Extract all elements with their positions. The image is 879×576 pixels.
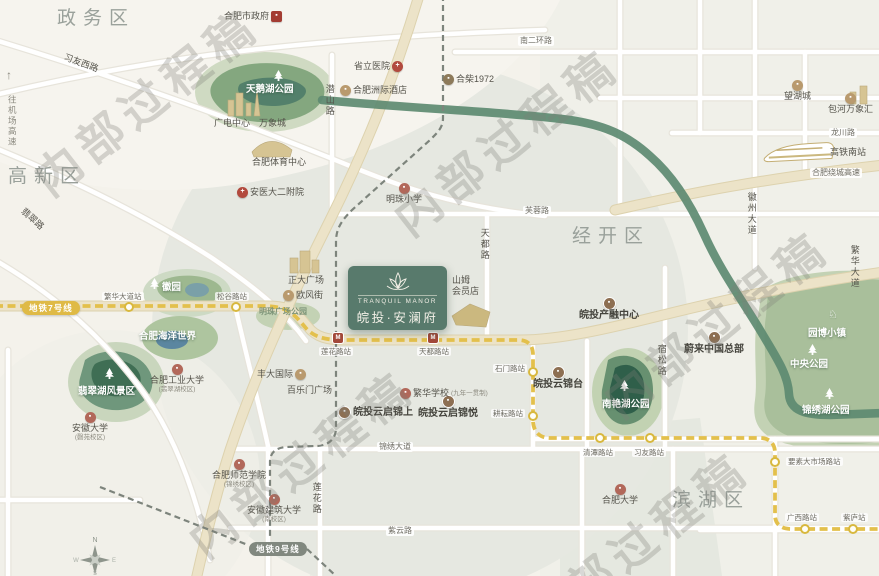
road-airport-expwy: 往机场高速 bbox=[7, 95, 17, 148]
poi-intercontinental-hotel-label: 合肥洲际酒店 bbox=[353, 85, 407, 96]
road-tiandulu-label: 天都路 bbox=[480, 228, 490, 261]
poi-hechai-1972-label: 合柴1972 bbox=[456, 74, 494, 85]
station-xiyoulu: 习友路站 bbox=[632, 448, 666, 457]
road-qianshanlu-label: 潜山路 bbox=[325, 84, 335, 117]
poi-sams-club: 山姆会员店 bbox=[452, 275, 479, 297]
poi-hefei-normal: ▪合肥师范学院(锦绣校区) bbox=[212, 459, 266, 489]
poi-wanxiangcheng-label: 万象城 bbox=[259, 118, 286, 128]
metro-station-dot bbox=[848, 524, 858, 534]
park-jinxiuhu: 锦绣湖公园 bbox=[802, 405, 850, 416]
metro-station-dot bbox=[770, 457, 780, 467]
poi-wantou-yunqi-jinyue-label: 皖投云启锦悦 bbox=[418, 408, 478, 420]
poi-hefei-normal-sublabel: (锦绣校区) bbox=[224, 481, 254, 489]
uni-icon: ▪ bbox=[234, 459, 245, 470]
hotel-icon: ▪ bbox=[340, 85, 351, 96]
road-jinxiu-dadao-label: 锦绣大道 bbox=[379, 442, 411, 451]
station-fanhuadadao: 繁华大道站 bbox=[102, 292, 144, 301]
poi-shengli-hospital: 省立医院+ bbox=[354, 61, 403, 72]
poi-gaotie-nanzhan-label: 高铁南站 bbox=[830, 147, 866, 157]
mall-icon: ▪ bbox=[845, 93, 856, 104]
park-feicuihu: 翡翠湖风景区 bbox=[78, 386, 135, 397]
district-binhu-label: 滨湖区 bbox=[672, 490, 750, 511]
mall-icon: ▪ bbox=[792, 80, 803, 91]
station-guangxilu-label: 广西路站 bbox=[787, 513, 817, 522]
park-feicuihu-label: 翡翠湖风景区 bbox=[78, 386, 135, 397]
brand-icon: ▪ bbox=[603, 297, 616, 310]
location-map: N E S W TRANQUIL MANOR 皖投·安澜府 地铁7号线 地铁9号… bbox=[0, 0, 879, 576]
district-jingkai: 经开区 bbox=[572, 226, 650, 249]
station-xiyoulu-label: 习友路站 bbox=[634, 448, 664, 457]
road-susonglu-label: 宿松路 bbox=[657, 344, 667, 377]
district-binhu: 滨湖区 bbox=[672, 490, 750, 513]
metro-9-badge: 地铁9号线 bbox=[249, 542, 307, 556]
poi-wanghucheng: ▪望湖城 bbox=[784, 80, 811, 102]
poi-anyida-er-hospital-label: 安医大二附院 bbox=[250, 187, 304, 198]
road-lianhualu-label: 莲花路 bbox=[312, 482, 322, 515]
poi-fanhua-school-label: 繁华学校 bbox=[413, 388, 449, 399]
metro-station-badge: M bbox=[332, 332, 344, 344]
poi-baohe-mixc-label: 包河万象汇 bbox=[828, 104, 873, 115]
park-central-park-label: 中央公园 bbox=[790, 359, 828, 370]
station-zilu: 紫庐站 bbox=[841, 513, 868, 522]
station-shimenlu: 石门路站 bbox=[493, 364, 527, 373]
park-huiyuan: 徽园 bbox=[162, 282, 181, 293]
school-icon: ▪ bbox=[400, 388, 411, 399]
mall-icon: ▪ bbox=[295, 369, 306, 380]
poi-gaotie-nanzhan: 高铁南站 bbox=[830, 147, 866, 158]
poi-hefei-normal-label: 合肥师范学院 bbox=[212, 470, 266, 481]
poi-anhui-jianzhu-label: 安徽建筑大学 bbox=[247, 505, 301, 516]
lotus-logo-icon bbox=[384, 271, 412, 293]
poi-hfut: ▪合肥工业大学(翡翠湖校区) bbox=[150, 364, 204, 394]
metro-station-dot bbox=[595, 433, 605, 443]
station-lianhualu: 莲花路站 bbox=[319, 347, 353, 356]
poi-hefei-government-label: 合肥市政府 bbox=[224, 11, 269, 22]
station-shimenlu-label: 石门路站 bbox=[495, 364, 525, 373]
district-zhengwu: 政务区 bbox=[57, 8, 135, 31]
poi-mingzhu-primary-label: 明珠小学 bbox=[386, 194, 422, 205]
cross-icon: + bbox=[237, 187, 248, 198]
station-zilu-label: 紫庐站 bbox=[843, 513, 866, 522]
station-gengyunlu-label: 耕耘路站 bbox=[493, 409, 523, 418]
poi-fengda-intl: 丰大国际▪ bbox=[257, 369, 306, 380]
district-jingkai-label: 经开区 bbox=[572, 226, 650, 247]
poi-wanghucheng-label: 望湖城 bbox=[784, 91, 811, 102]
metro-station-dot bbox=[645, 433, 655, 443]
park-tianehu-label: 天鹅湖公园 bbox=[246, 84, 294, 95]
station-qingtanlu-label: 清潭路站 bbox=[583, 448, 613, 457]
road-nanerhuanlu: 南二环路 bbox=[518, 36, 554, 46]
svg-text:E: E bbox=[112, 558, 116, 564]
poi-zhengda-plaza-label: 正大广场 bbox=[288, 275, 324, 285]
road-fanhua-dadao-label: 繁华大道 bbox=[850, 245, 860, 289]
poi-anhui-jianzhu-sublabel: (南校区) bbox=[262, 516, 286, 524]
poi-fengda-intl-label: 丰大国际 bbox=[257, 369, 293, 380]
district-gaoxin-label: 高新区 bbox=[8, 166, 86, 187]
road-huizhou-dadao: 徽州大道 bbox=[746, 192, 757, 236]
park-huiyuan-label: 徽园 bbox=[162, 282, 181, 293]
poi-bailemen-plaza: 百乐门广场 bbox=[287, 385, 332, 396]
brand-icon: ▪ bbox=[338, 406, 351, 419]
road-longchuanlu: 龙川路 bbox=[829, 128, 857, 138]
district-gaoxin: 高新区 bbox=[8, 166, 86, 189]
road-nanerhuanlu-label: 南二环路 bbox=[520, 36, 552, 45]
road-airport-expwy-label: 往机场高速 bbox=[7, 95, 17, 148]
station-qingtanlu: 清潭路站 bbox=[581, 448, 615, 457]
poi-hefei-government: 合肥市政府▪ bbox=[224, 11, 282, 22]
poi-fanhua-school: ▪繁华学校(九年一贯制) bbox=[400, 388, 488, 399]
park-nanyanhu-label: 南艳湖公园 bbox=[602, 399, 650, 410]
metro-station-dot bbox=[800, 524, 810, 534]
poi-hfut-sublabel: (翡翠湖校区) bbox=[159, 386, 196, 394]
svg-text:N: N bbox=[92, 537, 97, 544]
poi-anhui-univ-sublabel: (磬苑校区) bbox=[75, 434, 105, 442]
station-songgulu: 松谷路站 bbox=[215, 292, 249, 301]
cross-icon: + bbox=[392, 61, 403, 72]
poi-hefei-univ: ▪合肥大学 bbox=[602, 484, 638, 506]
arrow-up-icon: ↑ bbox=[6, 68, 12, 82]
park-jinxiuhu-label: 锦绣湖公园 bbox=[802, 405, 850, 416]
road-huizhou-dadao-label: 徽州大道 bbox=[747, 192, 757, 236]
brand-icon: ▪ bbox=[708, 331, 721, 344]
poi-wantou-yunjintai: ▪皖投云锦台 bbox=[533, 366, 583, 391]
metro-station-dot bbox=[528, 411, 538, 421]
project-name-cn: 皖投·安澜府 bbox=[357, 307, 439, 326]
park-yuanbo-town: 园博小镇 bbox=[808, 328, 846, 339]
school-icon: ▪ bbox=[399, 183, 410, 194]
svg-text:S: S bbox=[93, 571, 97, 576]
poi-wantou-yunqi-jinshang: ▪皖投云启锦上 bbox=[338, 406, 413, 419]
park-yuanbo-town-label: 园博小镇 bbox=[808, 328, 846, 339]
park-nanyanhu: 南艳湖公园 bbox=[602, 399, 650, 410]
poi-hechai-1972: ▪合柴1972 bbox=[443, 74, 494, 85]
poi-wantou-yunjintai-label: 皖投云锦台 bbox=[533, 379, 583, 391]
district-zhengwu-label: 政务区 bbox=[57, 8, 135, 29]
poi-sports-center-label: 合肥体育中心 bbox=[252, 157, 306, 167]
road-furonglu-label: 芙蓉路 bbox=[525, 206, 549, 215]
metro-station-dot bbox=[231, 302, 241, 312]
poi-sams-club-label: 山姆 bbox=[452, 275, 470, 285]
poi-wantou-chanrong-label: 皖投产融中心 bbox=[579, 310, 639, 322]
poi-anhui-jianzhu: ▪安徽建筑大学(南校区) bbox=[247, 494, 301, 524]
road-ziyunlu-label: 紫云路 bbox=[388, 526, 412, 535]
station-yaosudashichanglu-label: 要素大市场路站 bbox=[788, 457, 841, 466]
park-mingzhu-guangchang-label: 明珠广场公园 bbox=[259, 307, 307, 316]
station-tiandulu-label: 天都路站 bbox=[419, 347, 449, 356]
poi-bailemen-plaza-label: 百乐门广场 bbox=[287, 385, 332, 395]
svg-text:W: W bbox=[73, 558, 79, 564]
road-lianhualu: 莲花路 bbox=[311, 482, 322, 515]
road-longchuanlu-label: 龙川路 bbox=[831, 128, 855, 137]
factory-icon: ▪ bbox=[443, 74, 454, 85]
road-ziyunlu: 紫云路 bbox=[386, 526, 414, 536]
road-tiandulu: 天都路 bbox=[479, 228, 490, 261]
poi-mingzhu-primary: ▪明珠小学 bbox=[386, 183, 422, 205]
metro-station-badge: M bbox=[427, 332, 439, 344]
poi-fanhua-school-sublabel: (九年一贯制) bbox=[451, 390, 488, 398]
station-songgulu-label: 松谷路站 bbox=[217, 292, 247, 301]
poi-baohe-mixc: ▪包河万象汇 bbox=[828, 93, 873, 115]
road-raocheng-gaosu: 合肥绕城高速 bbox=[810, 168, 862, 178]
poi-wantou-yunqi-jinshang-label: 皖投云启锦上 bbox=[353, 407, 413, 419]
uni-icon: ▪ bbox=[172, 364, 183, 375]
poi-intercontinental-hotel: ▪合肥洲际酒店 bbox=[340, 85, 407, 96]
poi-sports-center: 合肥体育中心 bbox=[252, 157, 306, 168]
road-susonglu: 宿松路 bbox=[656, 344, 667, 377]
station-yaosudashichanglu: 要素大市场路站 bbox=[786, 457, 843, 466]
poi-anyida-er-hospital: +安医大二附院 bbox=[237, 187, 304, 198]
project-name-en: TRANQUIL MANOR bbox=[358, 295, 437, 305]
poi-oufengjie: ▪欧风街 bbox=[283, 290, 323, 301]
station-lianhualu-label: 莲花路站 bbox=[321, 347, 351, 356]
station-guangxilu: 广西路站 bbox=[785, 513, 819, 522]
park-mingzhu-guangchang: 明珠广场公园 bbox=[259, 307, 307, 317]
horse-icon: ♘ bbox=[828, 308, 838, 321]
mall-icon: ▪ bbox=[283, 290, 294, 301]
metro-7-badge: 地铁7号线 bbox=[22, 301, 80, 315]
uni-icon: ▪ bbox=[615, 484, 626, 495]
brand-icon: ▪ bbox=[552, 366, 565, 379]
road-furonglu: 芙蓉路 bbox=[523, 206, 551, 216]
poi-shengli-hospital-label: 省立医院 bbox=[354, 61, 390, 72]
uni-icon: ▪ bbox=[85, 412, 96, 423]
poi-wantou-chanrong: ▪皖投产融中心 bbox=[579, 297, 639, 322]
poi-anhui-univ-label: 安徽大学 bbox=[72, 423, 108, 434]
poi-anhui-univ: ▪安徽大学(磬苑校区) bbox=[72, 412, 108, 442]
poi-sams-club-label-2: 会员店 bbox=[452, 286, 479, 297]
road-qianshanlu: 潜山路 bbox=[324, 84, 335, 117]
park-tianehu: 天鹅湖公园 bbox=[246, 84, 294, 95]
poi-nio-hq-label: 蔚来中国总部 bbox=[684, 344, 744, 356]
metro-station-dot bbox=[124, 302, 134, 312]
project-card: TRANQUIL MANOR 皖投·安澜府 bbox=[348, 266, 447, 330]
poi-wanxiangcheng: 万象城 bbox=[259, 118, 286, 129]
road-fanhua-dadao: 繁华大道 bbox=[849, 245, 860, 289]
station-gengyunlu: 耕耘路站 bbox=[491, 409, 525, 418]
poi-oufengjie-label: 欧风街 bbox=[296, 290, 323, 301]
road-jinxiu-dadao: 锦绣大道 bbox=[377, 442, 413, 452]
gov-icon: ▪ bbox=[271, 11, 282, 22]
poi-zhengda-plaza: 正大广场 bbox=[288, 275, 324, 286]
station-tiandulu: 天都路站 bbox=[417, 347, 451, 356]
poi-guangdian-center-label: 广电中心 bbox=[214, 118, 250, 128]
poi-guangdian-center: 广电中心 bbox=[214, 118, 250, 129]
poi-nio-hq: ▪蔚来中国总部 bbox=[684, 331, 744, 356]
road-raocheng-gaosu-label: 合肥绕城高速 bbox=[812, 168, 860, 177]
park-central-park: 中央公园 bbox=[790, 359, 828, 370]
uni-icon: ▪ bbox=[269, 494, 280, 505]
park-ocean-world-label: 合肥海洋世界 bbox=[139, 331, 196, 342]
station-fanhuadadao-label: 繁华大道站 bbox=[104, 292, 142, 301]
poi-hfut-label: 合肥工业大学 bbox=[150, 375, 204, 386]
poi-hefei-univ-label: 合肥大学 bbox=[602, 495, 638, 506]
park-ocean-world: 合肥海洋世界 bbox=[139, 331, 196, 342]
